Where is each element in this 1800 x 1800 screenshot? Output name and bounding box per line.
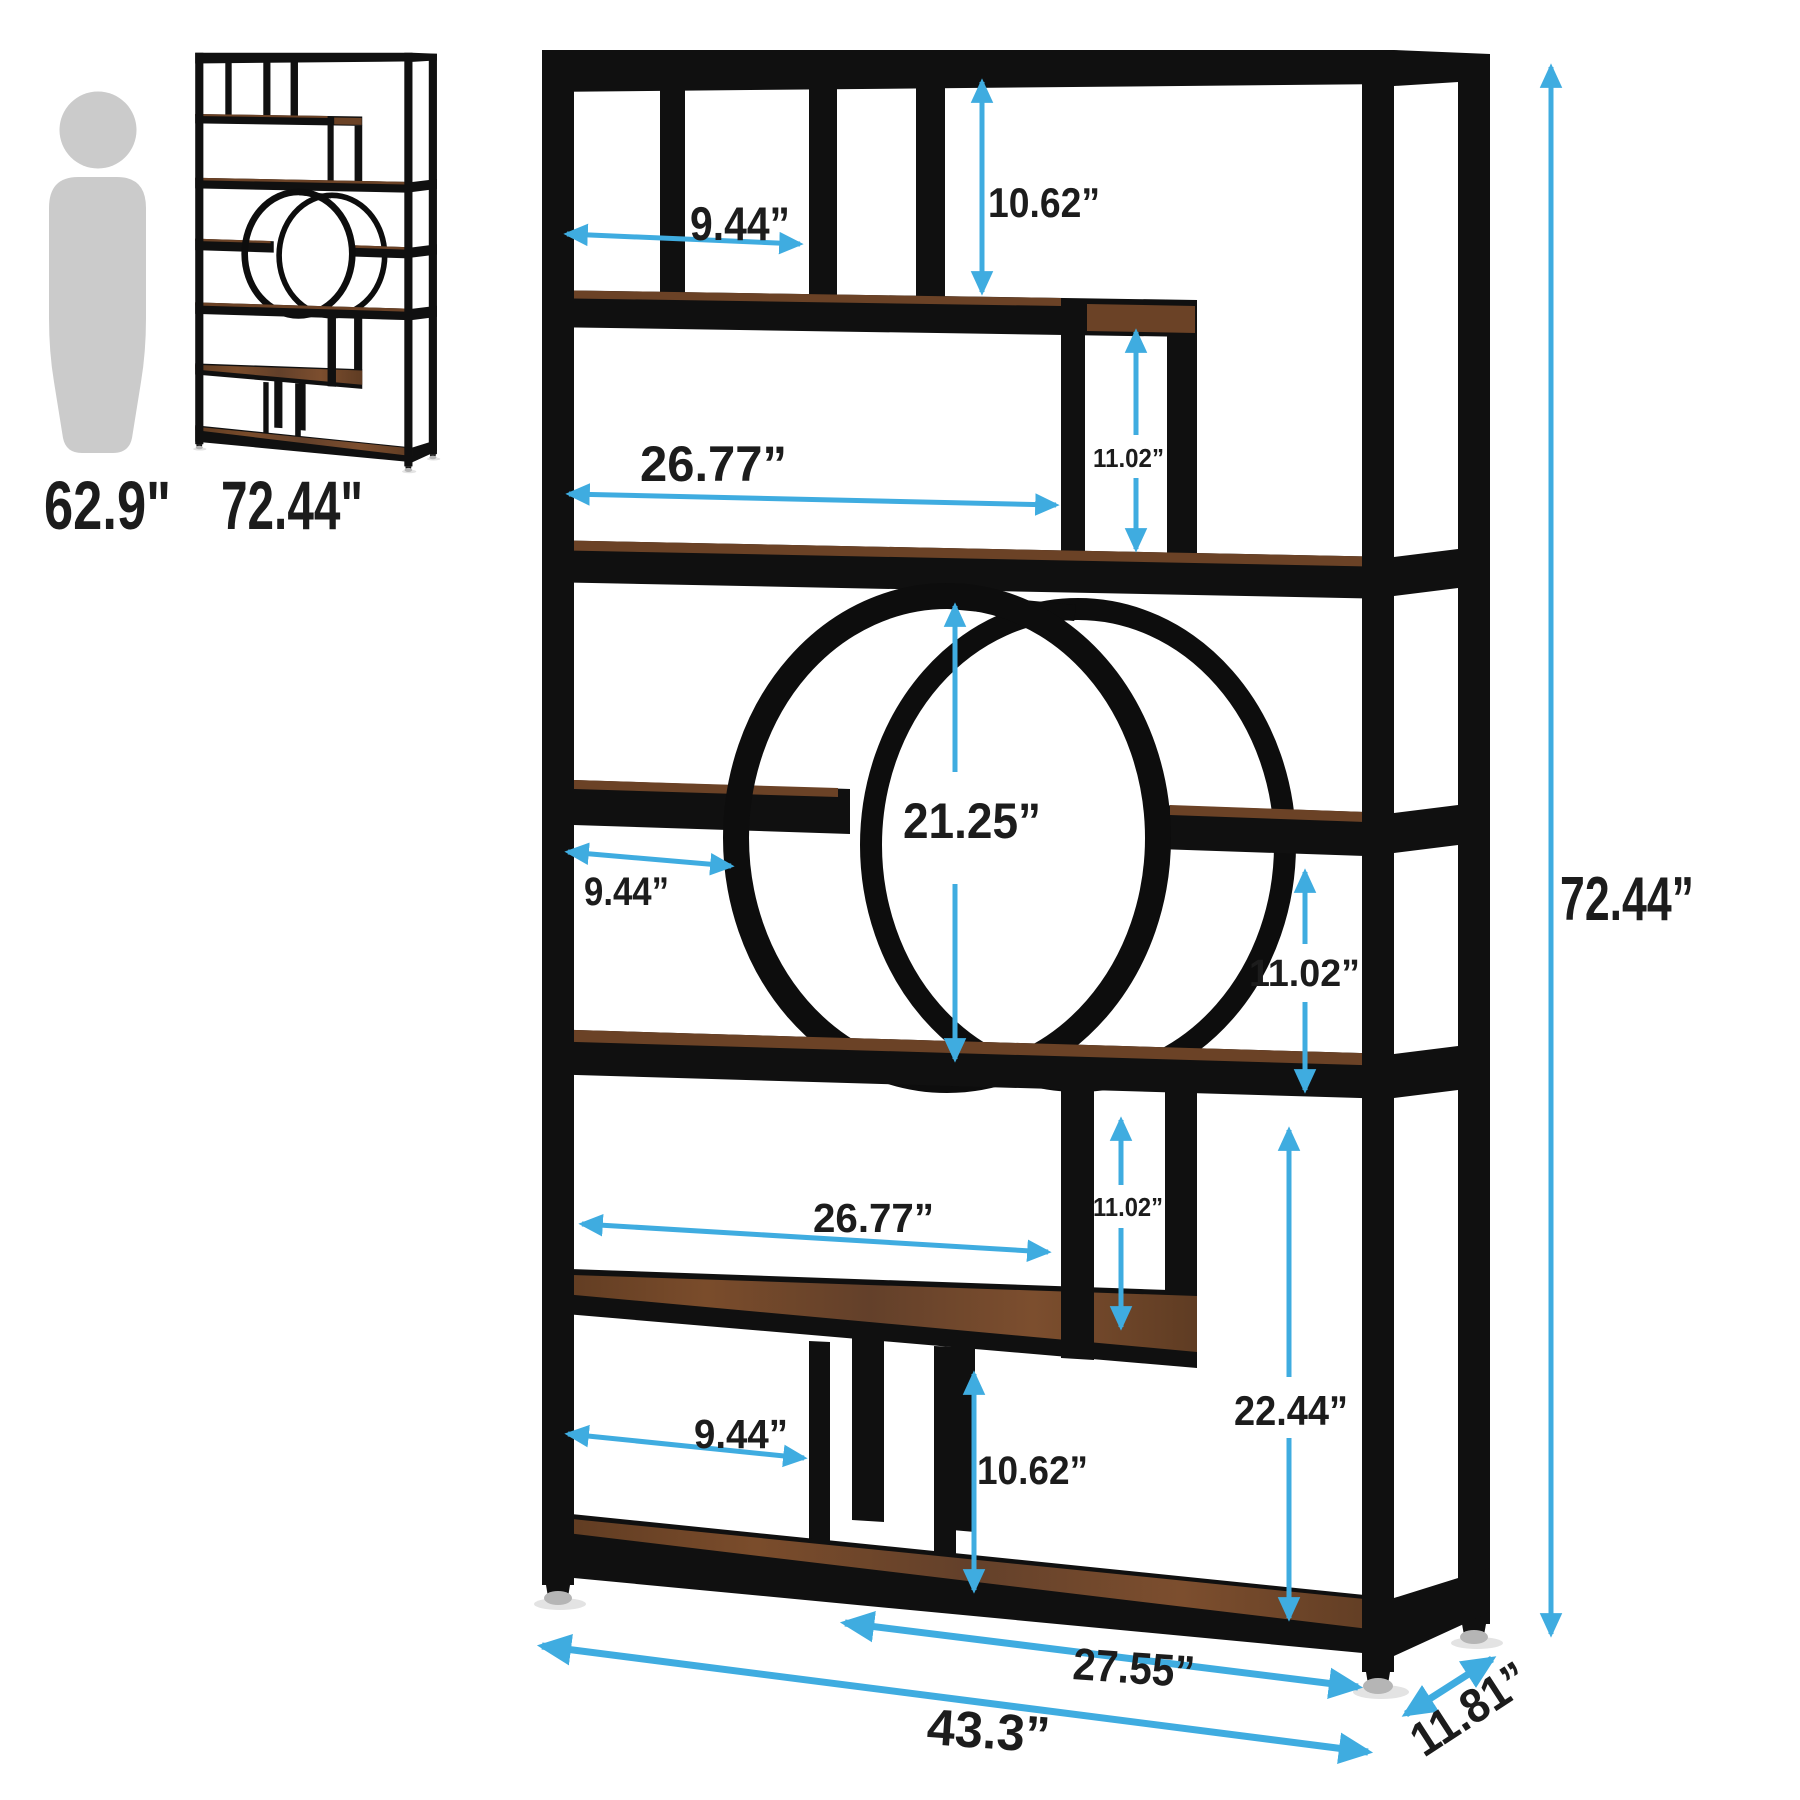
svg-text:9.44”: 9.44” bbox=[690, 197, 790, 250]
svg-text:11.02”: 11.02” bbox=[1249, 953, 1360, 995]
svg-text:11.02”: 11.02” bbox=[1093, 1192, 1163, 1222]
svg-text:72.44": 72.44" bbox=[221, 467, 363, 544]
svg-text:27.55”: 27.55” bbox=[1071, 1638, 1196, 1697]
svg-text:9.44”: 9.44” bbox=[694, 1411, 788, 1457]
svg-text:62.9": 62.9" bbox=[44, 467, 171, 544]
svg-text:72.44”: 72.44” bbox=[1560, 865, 1694, 934]
svg-text:22.44”: 22.44” bbox=[1234, 1387, 1348, 1434]
svg-text:26.77”: 26.77” bbox=[813, 1195, 934, 1241]
svg-text:26.77”: 26.77” bbox=[640, 436, 787, 492]
svg-text:10.62”: 10.62” bbox=[977, 1449, 1088, 1493]
svg-text:43.3”: 43.3” bbox=[925, 1698, 1052, 1763]
svg-text:10.62”: 10.62” bbox=[988, 179, 1100, 226]
svg-text:21.25”: 21.25” bbox=[903, 793, 1041, 849]
svg-text:11.02”: 11.02” bbox=[1093, 443, 1164, 473]
svg-text:9.44”: 9.44” bbox=[584, 870, 669, 914]
